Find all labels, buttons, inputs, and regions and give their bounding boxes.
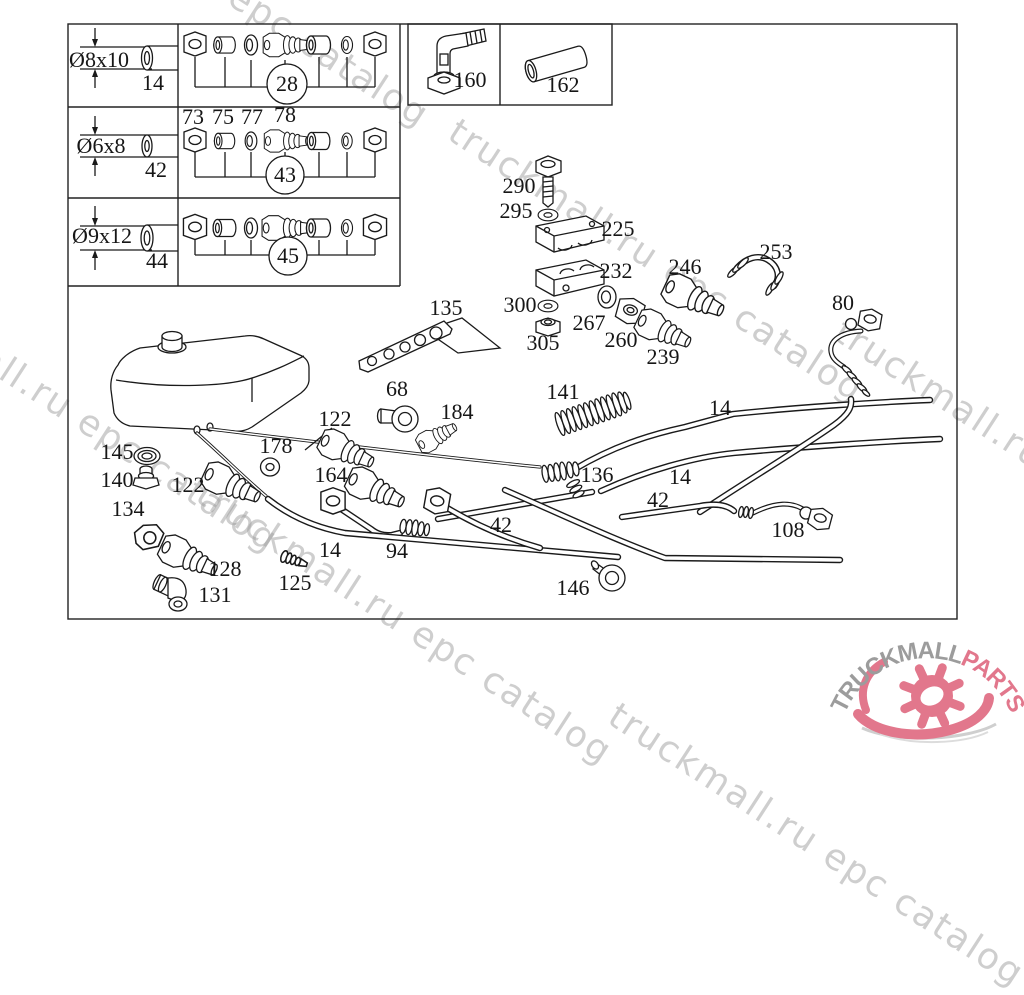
label-part-305: 305 bbox=[527, 330, 560, 356]
label-part-260: 260 bbox=[605, 327, 638, 353]
label-part-14-top: 14 bbox=[709, 395, 731, 421]
label-part-145: 145 bbox=[101, 439, 134, 465]
label-part-140: 140 bbox=[101, 467, 134, 493]
label-dim-8x10-len: 14 bbox=[142, 70, 164, 96]
label-part-184: 184 bbox=[441, 399, 474, 425]
label-part-128: 128 bbox=[209, 556, 242, 582]
label-part-239: 239 bbox=[647, 344, 680, 370]
label-part-246: 246 bbox=[669, 254, 702, 280]
label-part-160: 160 bbox=[454, 67, 487, 93]
label-part-108: 108 bbox=[772, 517, 805, 543]
label-part-253: 253 bbox=[760, 239, 793, 265]
label-part-164: 164 bbox=[315, 462, 348, 488]
label-part-122-left: 122 bbox=[172, 472, 205, 498]
label-group-43: 43 bbox=[274, 162, 296, 188]
label-dim-6x8: Ø6x8 bbox=[77, 133, 126, 159]
label-dim-9x12-len: 44 bbox=[146, 248, 168, 274]
label-part-135: 135 bbox=[430, 295, 463, 321]
label-part-94: 94 bbox=[386, 538, 408, 564]
label-dim-9x12: Ø9x12 bbox=[72, 223, 132, 249]
label-part-134: 134 bbox=[112, 496, 145, 522]
label-part-125: 125 bbox=[279, 570, 312, 596]
label-dim-8x10: Ø8x10 bbox=[69, 47, 129, 73]
label-part-14-bl: 14 bbox=[319, 537, 341, 563]
label-part-300: 300 bbox=[504, 292, 537, 318]
label-part-131: 131 bbox=[199, 582, 232, 608]
page: { "watermark": { "text": "truckmall.ru e… bbox=[0, 0, 1024, 750]
label-part-178: 178 bbox=[260, 433, 293, 459]
label-dim-6x8-len: 42 bbox=[145, 157, 167, 183]
label-part-225: 225 bbox=[602, 216, 635, 242]
label-part-80: 80 bbox=[832, 290, 854, 316]
label-part-14-mid: 14 bbox=[669, 464, 691, 490]
label-group-45: 45 bbox=[277, 243, 299, 269]
label-part-68: 68 bbox=[386, 376, 408, 402]
label-group-28: 28 bbox=[276, 71, 298, 97]
label-sub-78: 78 bbox=[274, 102, 296, 128]
label-sub-75: 75 bbox=[212, 104, 234, 130]
label-part-122-top: 122 bbox=[319, 406, 352, 432]
label-sub-77: 77 bbox=[241, 104, 263, 130]
label-part-162: 162 bbox=[547, 72, 580, 98]
label-part-136: 136 bbox=[581, 462, 614, 488]
label-part-42-right: 42 bbox=[647, 487, 669, 513]
label-part-232: 232 bbox=[600, 258, 633, 284]
label-part-42-left: 42 bbox=[490, 512, 512, 538]
label-sub-73: 73 bbox=[182, 104, 204, 130]
truckmall-logo: TRUCKMALLPARTS bbox=[828, 628, 1024, 750]
label-part-146: 146 bbox=[557, 575, 590, 601]
label-part-290: 290 bbox=[503, 173, 536, 199]
label-part-141: 141 bbox=[547, 379, 580, 405]
label-part-295: 295 bbox=[500, 198, 533, 224]
label-part-267: 267 bbox=[573, 310, 606, 336]
gear-icon bbox=[904, 668, 960, 724]
